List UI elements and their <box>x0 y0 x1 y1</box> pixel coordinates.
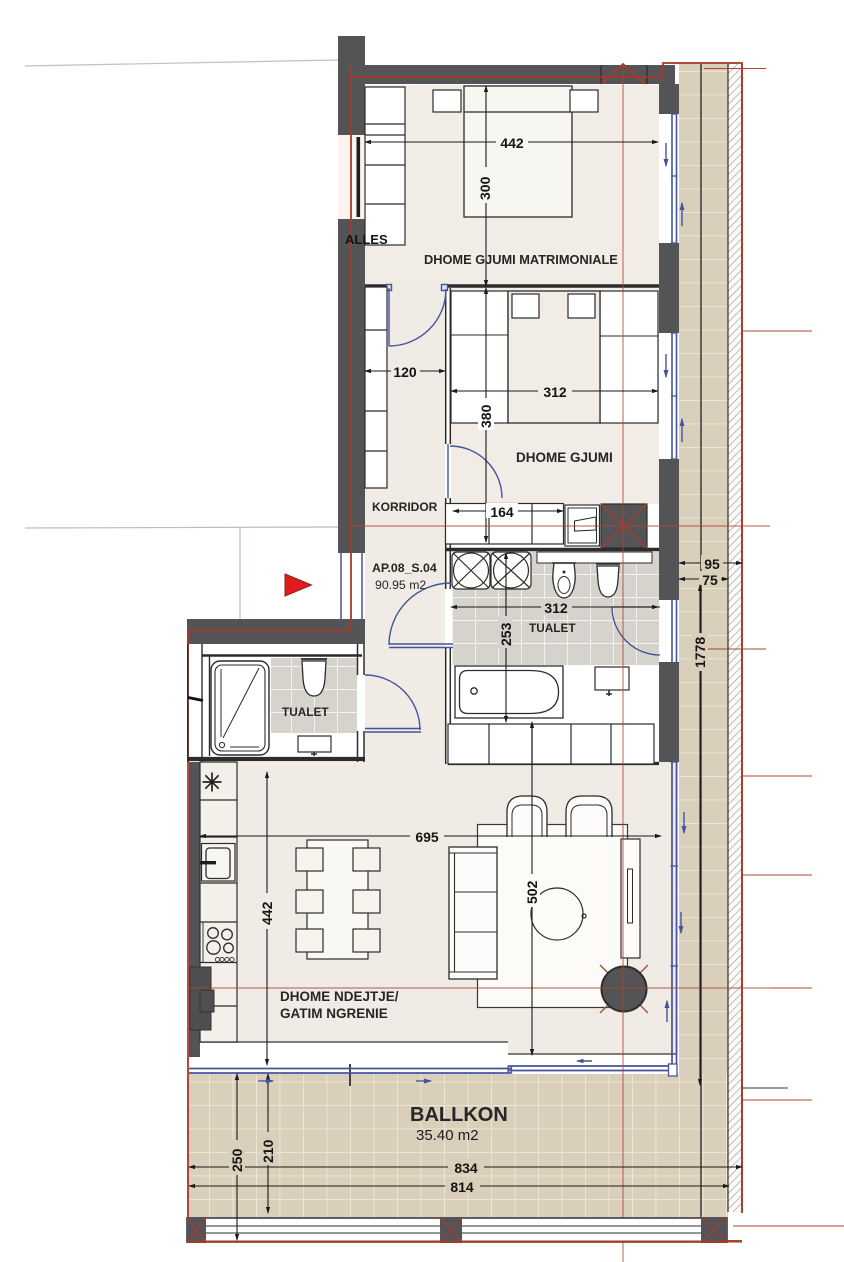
svg-text:75: 75 <box>702 572 718 588</box>
svg-text:KORRIDOR: KORRIDOR <box>372 500 438 514</box>
svg-text:TUALET: TUALET <box>529 621 576 635</box>
svg-text:GATIM NGRENIE: GATIM NGRENIE <box>280 1006 388 1021</box>
svg-text:164: 164 <box>490 504 514 520</box>
svg-text:442: 442 <box>500 135 524 151</box>
svg-text:DHOME GJUMI MATRIMONIALE: DHOME GJUMI MATRIMONIALE <box>424 252 618 267</box>
svg-text:DHOME GJUMI: DHOME GJUMI <box>516 450 613 465</box>
svg-text:1778: 1778 <box>692 637 708 668</box>
svg-text:250: 250 <box>229 1148 245 1172</box>
svg-text:TUALET: TUALET <box>282 705 329 719</box>
svg-text:253: 253 <box>498 622 514 646</box>
svg-text:312: 312 <box>543 384 567 400</box>
svg-text:BALLKON: BALLKON <box>410 1104 508 1126</box>
svg-text:90.95 m2: 90.95 m2 <box>375 578 426 592</box>
svg-text:35.40 m2: 35.40 m2 <box>416 1127 479 1144</box>
svg-text:502: 502 <box>524 880 540 904</box>
svg-text:95: 95 <box>704 556 720 572</box>
svg-text:ALLES: ALLES <box>345 232 388 247</box>
svg-text:AP.08_S.04: AP.08_S.04 <box>372 561 437 575</box>
svg-text:834: 834 <box>454 1160 478 1176</box>
svg-text:210: 210 <box>260 1139 276 1163</box>
svg-text:312: 312 <box>544 600 568 616</box>
svg-text:300: 300 <box>477 176 493 200</box>
svg-text:695: 695 <box>415 829 439 845</box>
svg-text:120: 120 <box>393 364 417 380</box>
svg-text:442: 442 <box>259 901 275 925</box>
svg-text:814: 814 <box>450 1179 474 1195</box>
svg-text:380: 380 <box>478 404 494 428</box>
svg-text:DHOME NDEJTJE/: DHOME NDEJTJE/ <box>280 989 399 1004</box>
